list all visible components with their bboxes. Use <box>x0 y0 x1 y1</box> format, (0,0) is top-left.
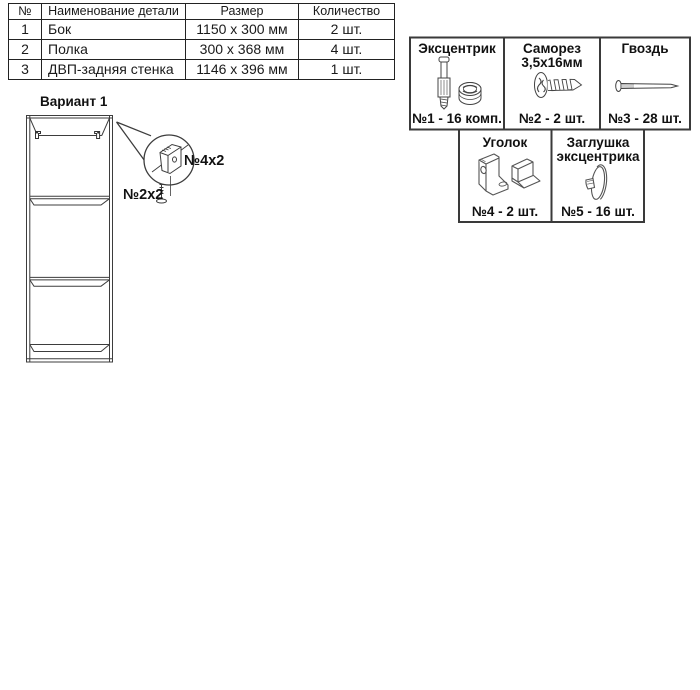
svg-text:Эксцентрик: Эксцентрик <box>418 41 496 56</box>
svg-text:№4х2: №4х2 <box>184 153 224 169</box>
svg-text:Гвоздь: Гвоздь <box>621 41 668 56</box>
svg-text:№2х2: №2х2 <box>123 187 163 203</box>
svg-text:Вариант 1: Вариант 1 <box>40 94 108 109</box>
svg-text:3,5х16мм: 3,5х16мм <box>521 55 582 70</box>
svg-text:Заглушка: Заглушка <box>567 135 630 150</box>
svg-text:№2 - 2 шт.: №2 - 2 шт. <box>519 111 585 126</box>
svg-text:№5 - 16 шт.: №5 - 16 шт. <box>561 204 635 219</box>
svg-text:эксцентрика: эксцентрика <box>557 149 640 164</box>
svg-text:Саморез: Саморез <box>523 41 581 56</box>
svg-text:№3 - 28 шт.: №3 - 28 шт. <box>608 111 682 126</box>
svg-text:№4 - 2 шт.: №4 - 2 шт. <box>472 204 538 219</box>
svg-text:№1 - 16 комп.: №1 - 16 комп. <box>412 111 502 126</box>
svg-text:Уголок: Уголок <box>483 135 528 150</box>
